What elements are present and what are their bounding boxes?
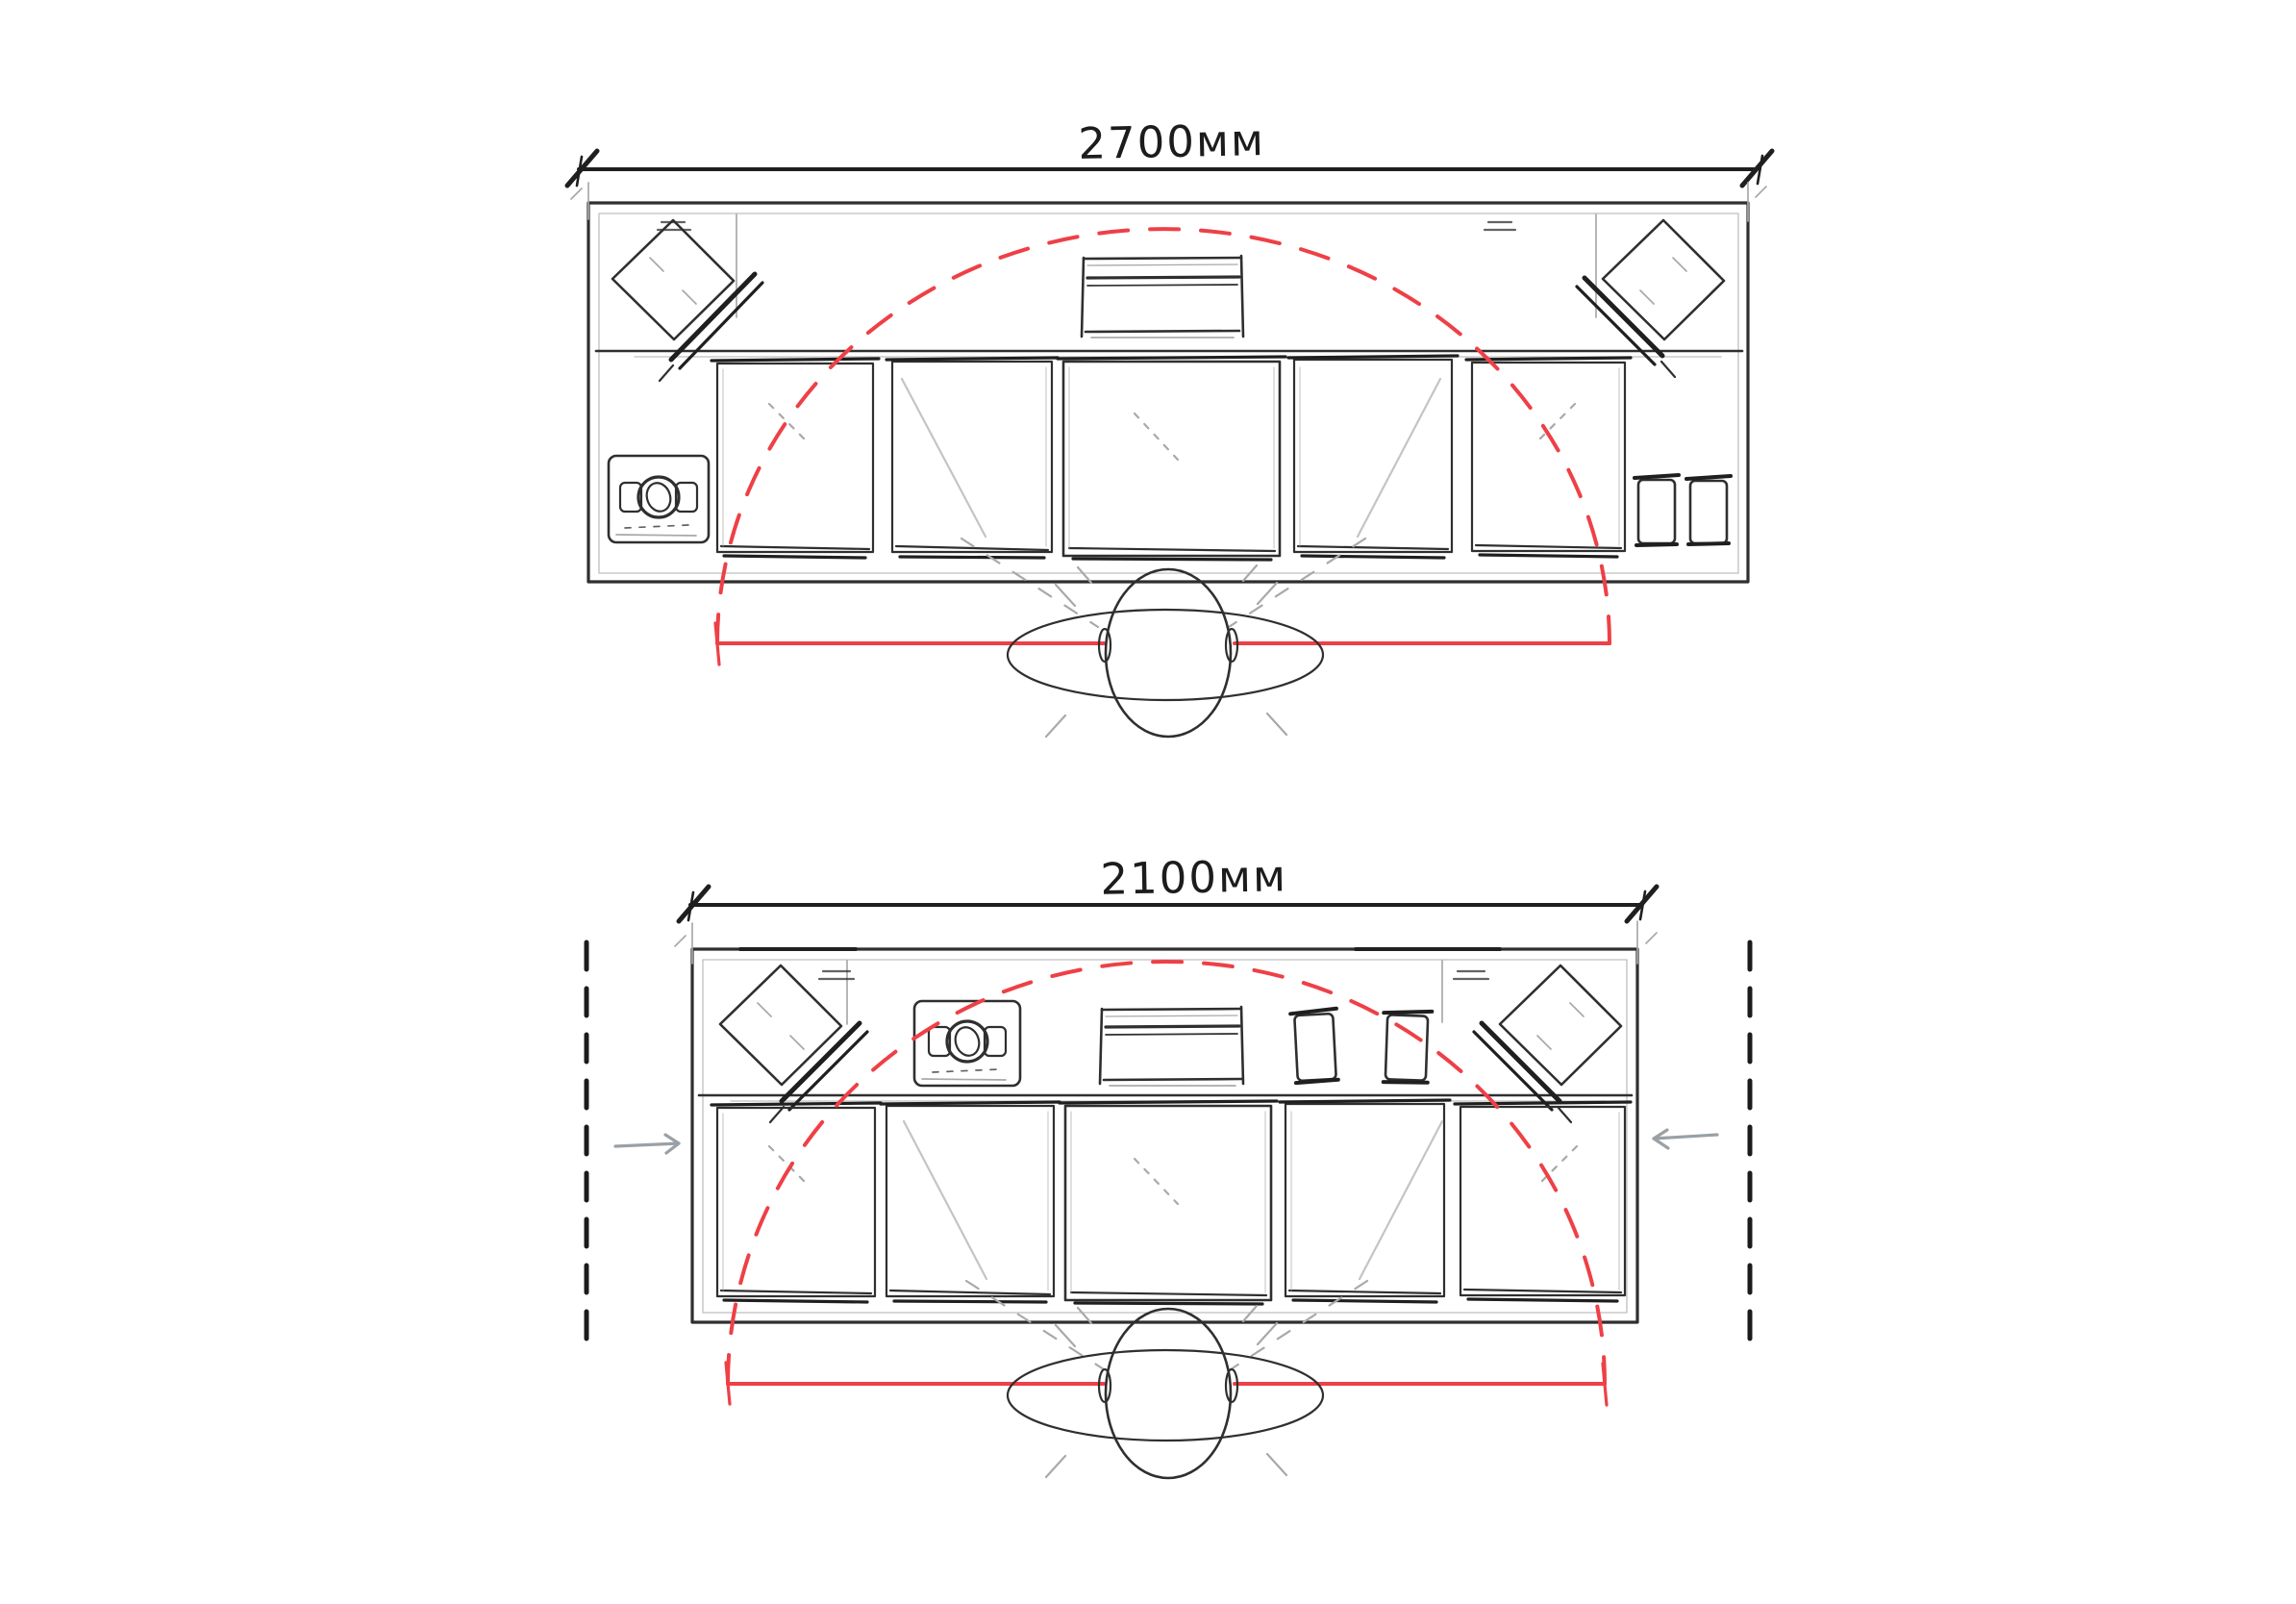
seated-listener (1008, 565, 1323, 737)
sight-lines (769, 1121, 1577, 1369)
monitor-5 (1466, 358, 1631, 557)
monitor-row (711, 1100, 1631, 1304)
desk-outline-2700 (571, 183, 1766, 582)
monitor-2 (886, 358, 1058, 558)
monitor-row (711, 356, 1631, 560)
inward-arrow-right (1654, 1130, 1717, 1148)
phone-1 (1635, 475, 1679, 545)
dimension-label-2100: 2100мм (1100, 850, 1287, 904)
phones (1290, 1009, 1432, 1084)
right-speaker (1577, 220, 1724, 377)
dimension-line-2700: 2700мм (567, 114, 1772, 186)
diagram-2700mm: 2700мм (567, 114, 1772, 737)
phone-2 (1686, 476, 1731, 544)
phone-2 (1382, 1010, 1433, 1084)
listening-arc (715, 229, 1610, 664)
monitor-3-center (1060, 1101, 1277, 1304)
audio-interface (609, 456, 709, 542)
dimension-label-2700: 2700мм (1078, 114, 1265, 169)
phones (1635, 475, 1731, 545)
audio-interface (914, 1001, 1020, 1086)
monitor-1 (711, 1103, 881, 1302)
seated-listener (1008, 1306, 1323, 1478)
laptop-on-stand (1100, 1007, 1243, 1086)
monitor-2 (881, 1102, 1060, 1302)
sketch-canvas: 2700мм (0, 0, 2296, 1604)
monitor-4 (1288, 356, 1458, 558)
listening-arc (726, 962, 1607, 1405)
laptop-on-stand (1082, 256, 1243, 338)
monitor-4 (1280, 1100, 1450, 1302)
monitor-5 (1455, 1102, 1631, 1301)
phone-1 (1290, 1009, 1340, 1083)
floor-plan-sketch: 2700мм (0, 0, 2296, 1604)
right-speaker (1474, 965, 1621, 1122)
sight-lines (769, 379, 1575, 627)
diagram-2100mm: 2100мм (586, 850, 1750, 1478)
dimension-line-2100: 2100мм (679, 850, 1657, 921)
inward-arrow-left (615, 1135, 679, 1153)
monitor-3-center (1058, 357, 1285, 560)
